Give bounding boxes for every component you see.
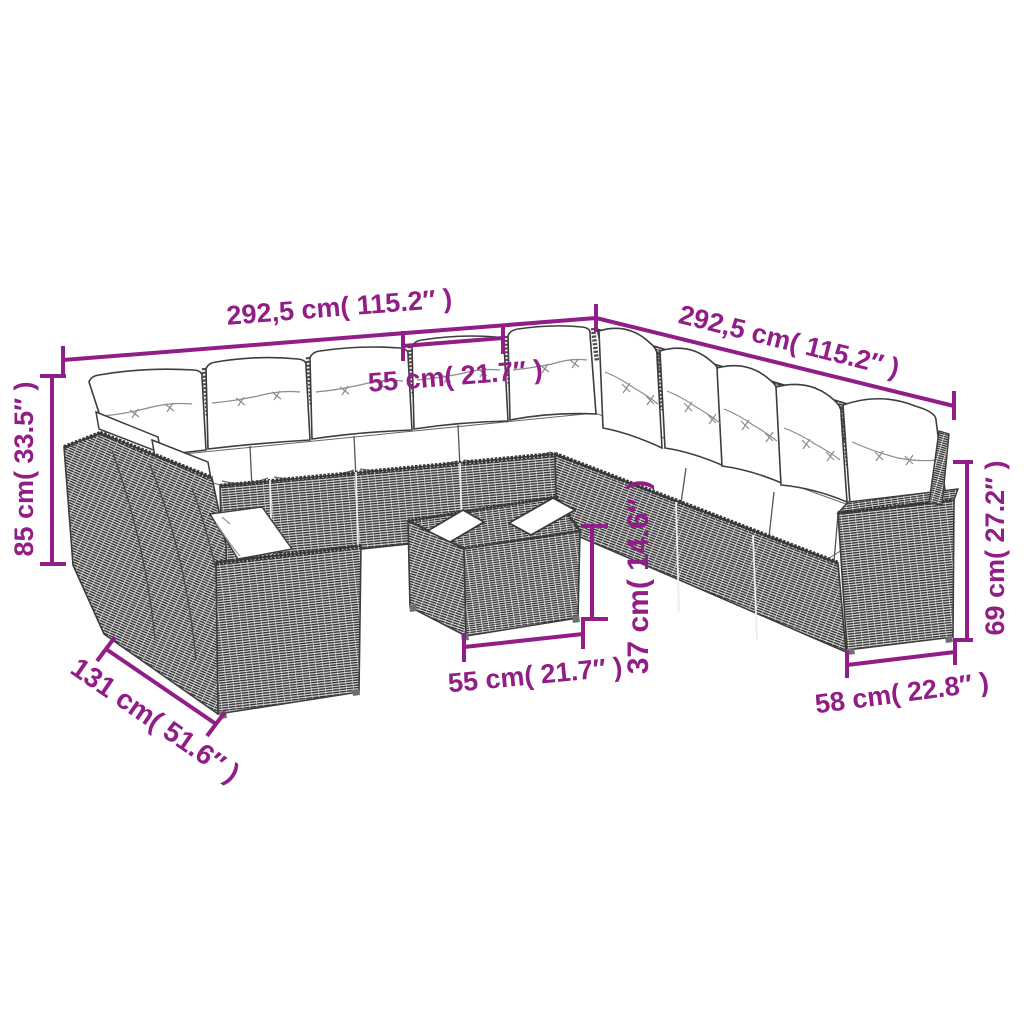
svg-text:69 cm( 27.2″ ): 69 cm( 27.2″ ) (980, 460, 1010, 635)
svg-text:85 cm( 33.5″ ): 85 cm( 33.5″ ) (9, 381, 39, 556)
svg-text:292,5 cm( 115.2″ ): 292,5 cm( 115.2″ ) (225, 283, 453, 331)
svg-text:37 cm( 14.6″ ): 37 cm( 14.6″ ) (622, 480, 655, 674)
svg-text:58 cm( 22.8″ ): 58 cm( 22.8″ ) (813, 667, 990, 720)
svg-text:55 cm( 21.7″ ): 55 cm( 21.7″ ) (447, 652, 624, 699)
